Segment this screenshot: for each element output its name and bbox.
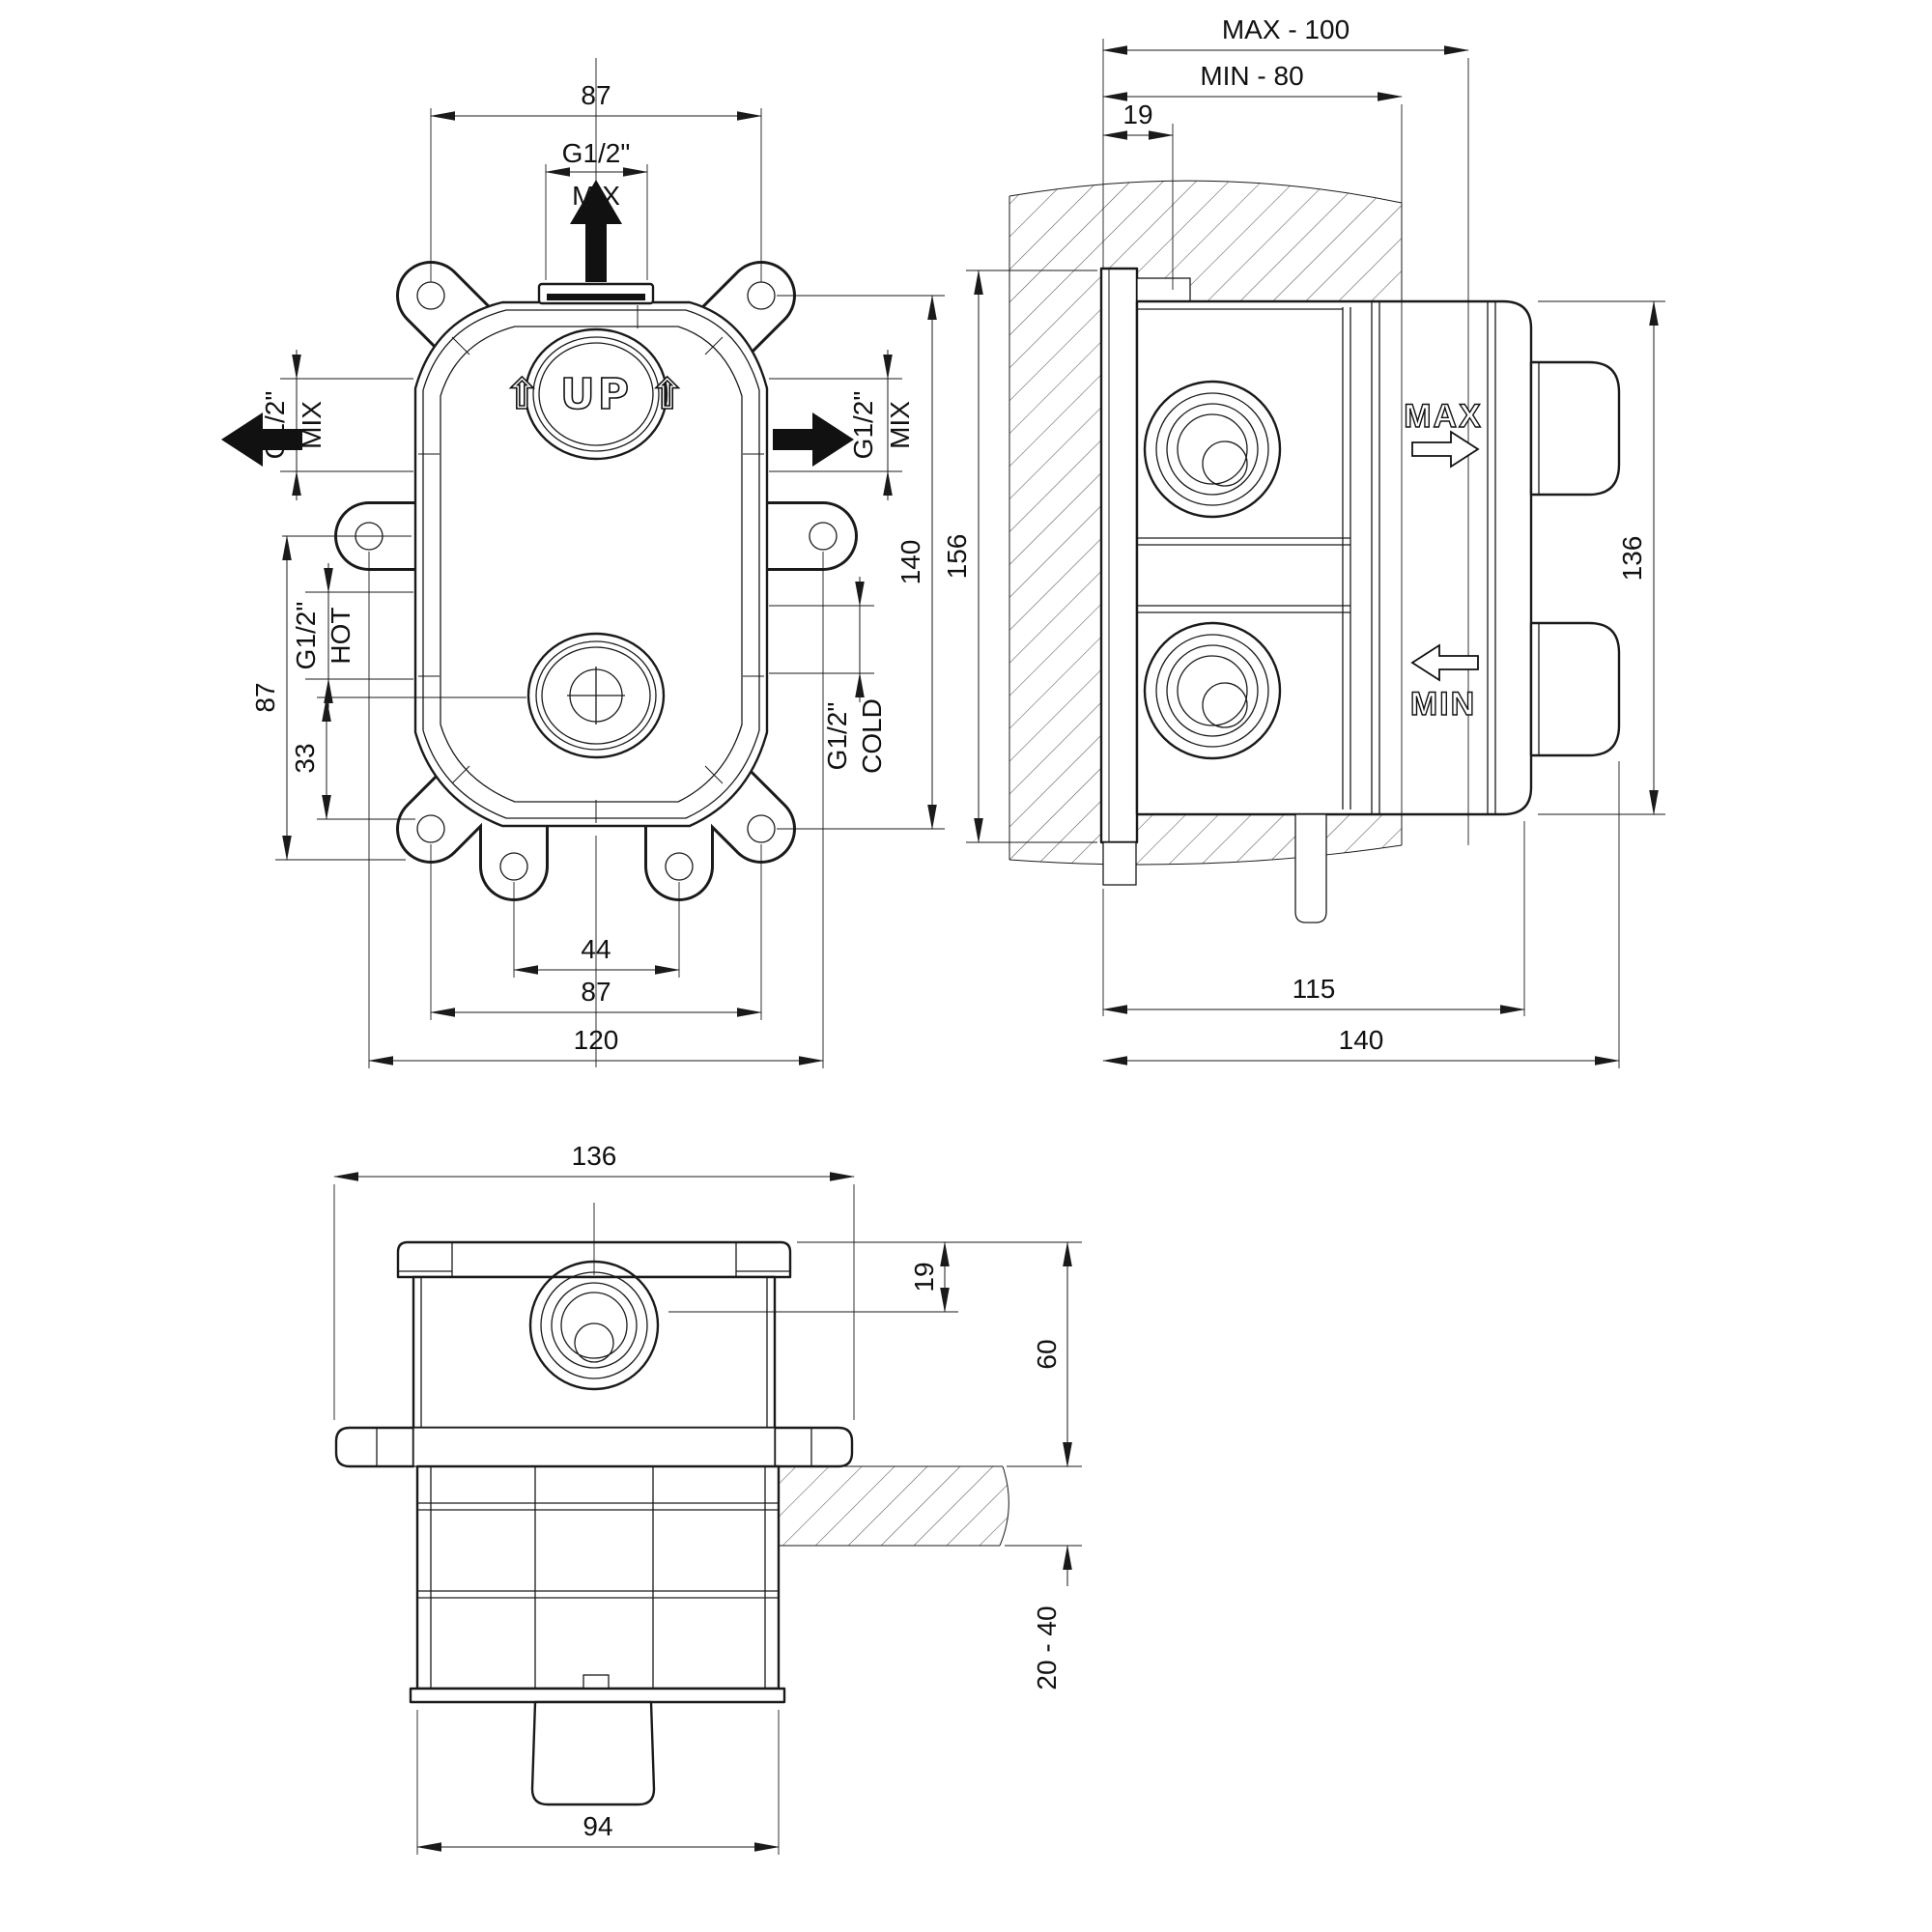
svg-text:19: 19 <box>909 1262 939 1292</box>
dim-front-left-port: G1/2" MIX <box>221 350 413 500</box>
base-plate <box>411 1689 784 1702</box>
dim-front-right-port: G1/2" MIX <box>769 350 915 500</box>
svg-text:HOT: HOT <box>326 607 355 664</box>
mounting-foot-left <box>1103 842 1136 885</box>
flow-arrow-left-icon <box>221 412 302 467</box>
svg-text:60: 60 <box>1032 1339 1062 1369</box>
protruding-body <box>417 1466 779 1689</box>
dim-front-cold-port: G1/2" COLD <box>769 577 887 774</box>
svg-text:19: 19 <box>1122 99 1152 129</box>
svg-text:44: 44 <box>581 934 611 964</box>
locator-notch <box>583 1675 609 1689</box>
svg-text:MAX - 100: MAX - 100 <box>1222 14 1350 44</box>
dim-plan-in-wall-depth: 60 <box>1007 1242 1082 1466</box>
dim-side-min-depth: MIN - 80 <box>1103 61 1402 97</box>
drawing-canvas: ⇧ UP ⇧ 87 G1/2" <box>0 0 1932 1932</box>
up-marking-label: ⇧ UP ⇧ <box>504 370 688 419</box>
technical-drawing-page: ⇧ UP ⇧ 87 G1/2" <box>0 0 1932 1932</box>
svg-text:87: 87 <box>581 80 611 110</box>
retainer-tab-lower <box>1531 623 1619 755</box>
front-view: ⇧ UP ⇧ 87 G1/2" <box>221 58 945 1068</box>
svg-text:G1/2": G1/2" <box>822 702 852 771</box>
svg-text:87: 87 <box>581 977 611 1007</box>
svg-text:33: 33 <box>290 743 320 773</box>
svg-text:115: 115 <box>1293 974 1336 1004</box>
svg-text:156: 156 <box>942 534 972 580</box>
spout-stub <box>532 1702 654 1804</box>
retainer-tab-upper <box>1531 362 1619 495</box>
flange-plate <box>1101 269 1137 842</box>
wall-section-plan <box>779 1466 1009 1546</box>
top-outlet-cap <box>539 284 653 303</box>
mounting-foot-right <box>1295 814 1326 923</box>
svg-text:87: 87 <box>250 682 280 712</box>
svg-text:136: 136 <box>572 1141 617 1171</box>
flow-arrow-right-icon <box>773 412 854 467</box>
svg-text:120: 120 <box>574 1025 619 1055</box>
valve-box-body-plan <box>336 1203 1009 1804</box>
wing-right <box>775 1428 852 1466</box>
svg-text:94: 94 <box>582 1811 612 1841</box>
wing-left <box>336 1428 413 1466</box>
svg-text:MIN - 80: MIN - 80 <box>1200 61 1303 91</box>
svg-text:136: 136 <box>1617 536 1647 582</box>
svg-text:G1/2": G1/2" <box>291 602 321 670</box>
svg-text:G1/2": G1/2" <box>848 391 878 460</box>
svg-text:20 - 40: 20 - 40 <box>1032 1605 1062 1690</box>
svg-text:140: 140 <box>895 540 925 585</box>
svg-text:MIX: MIX <box>885 401 915 449</box>
bottom-view: 136 19 60 20 - 40 94 <box>334 1141 1082 1855</box>
dim-plan-wall-thickness: 20 - 40 <box>1005 1428 1082 1690</box>
svg-text:COLD: COLD <box>857 698 887 774</box>
svg-text:MAX: MAX <box>1404 398 1483 435</box>
dim-front-bottom-ear-gap: 44 <box>514 882 679 978</box>
dim-front-left-span: 87 <box>250 536 412 860</box>
svg-text:G1/2": G1/2" <box>562 138 631 168</box>
dim-front-top-port: G1/2" MIX <box>546 138 647 282</box>
dim-front-hot-port: G1/2" HOT <box>291 563 413 708</box>
svg-text:140: 140 <box>1339 1025 1384 1055</box>
side-view: MAX MIN MAX - 100 MIN - 80 19 <box>942 14 1665 1068</box>
svg-text:MIN: MIN <box>1410 686 1476 723</box>
